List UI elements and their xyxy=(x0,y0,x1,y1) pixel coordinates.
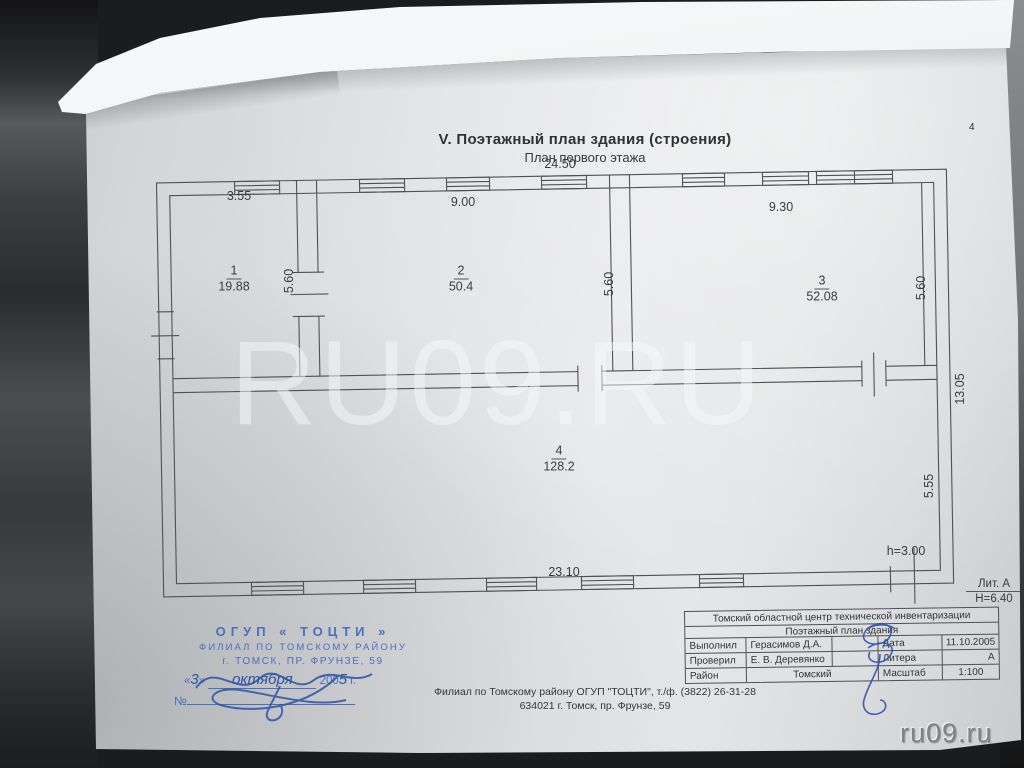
room-1-label: 1 19.88 xyxy=(218,264,249,295)
dim-room2-width: 9.00 xyxy=(451,195,475,209)
checked-label: Проверил xyxy=(686,652,746,668)
dim-room1-depth: 5.60 xyxy=(282,269,296,293)
stamp-date-month: октября xyxy=(232,671,293,688)
watermark-corner: ru09.ru xyxy=(900,718,993,749)
dim-total-width: 24.50 xyxy=(544,157,575,171)
litera-label-cell: Литера xyxy=(878,649,942,665)
room-2-label: 2 50.4 xyxy=(449,264,473,295)
dim-room3-depth: 5.60 xyxy=(914,276,928,300)
dim-room3-width: 9.30 xyxy=(769,200,793,214)
scale-label: Масштаб xyxy=(878,664,942,680)
stamp-date-year-digit: 5 xyxy=(339,671,347,688)
footer-address-line: 634021 г. Томск, пр. Фрунзе, 59 xyxy=(395,700,795,712)
plan-windows-top xyxy=(234,170,892,194)
footer-branch-line: Филиал по Томскому району ОГУП "ТОЦТИ", … xyxy=(395,686,795,698)
dim-room1-width: 3.55 xyxy=(227,189,251,203)
dim-room4-depth: 5.55 xyxy=(922,474,936,498)
district-label: Район xyxy=(686,667,746,683)
signature-cell xyxy=(831,635,877,651)
signature-cell-2 xyxy=(832,650,878,666)
litera-block: Лит. А Н=6.40 xyxy=(966,578,1022,605)
room-3-label: 3 52.08 xyxy=(806,274,837,305)
watermark-center: RU09.RU xyxy=(230,314,764,452)
dim-ceiling-height: h=3.00 xyxy=(887,544,926,558)
stamp-branch: ФИЛИАЛ ПО ТОМСКОМУ РАЙОНУ xyxy=(168,642,438,653)
checked-value: Е. В. Деревянко xyxy=(746,651,832,667)
made-label: Выполнил xyxy=(685,637,745,653)
building-height: Н=6.40 xyxy=(966,593,1022,605)
title-block-table: Томский областной центр технической инве… xyxy=(684,607,1000,684)
litera-label: Лит. А xyxy=(966,578,1022,592)
date-label: Дата xyxy=(877,634,941,650)
dim-right-total: 13.05 xyxy=(953,373,967,404)
dim-room2-depth: 5.60 xyxy=(602,272,616,296)
photo-background-left xyxy=(0,0,98,768)
stamp-org-name: ОГУП « ТОЦТИ » xyxy=(168,624,438,639)
litera-value: А xyxy=(942,649,999,665)
stamp-date-day: 3 xyxy=(190,671,198,688)
date-value: 11.10.2005 xyxy=(941,634,998,650)
scale-value: 1:100 xyxy=(942,664,999,680)
plan-windows-bottom xyxy=(251,574,743,596)
stamp-address: г. ТОМСК, ПР. ФРУНЗЕ, 59 xyxy=(168,656,438,667)
district-value: Томский xyxy=(746,665,878,682)
dim-bottom-partial: 23.10 xyxy=(548,565,579,579)
made-value: Герасимов Д.А. xyxy=(745,636,831,652)
